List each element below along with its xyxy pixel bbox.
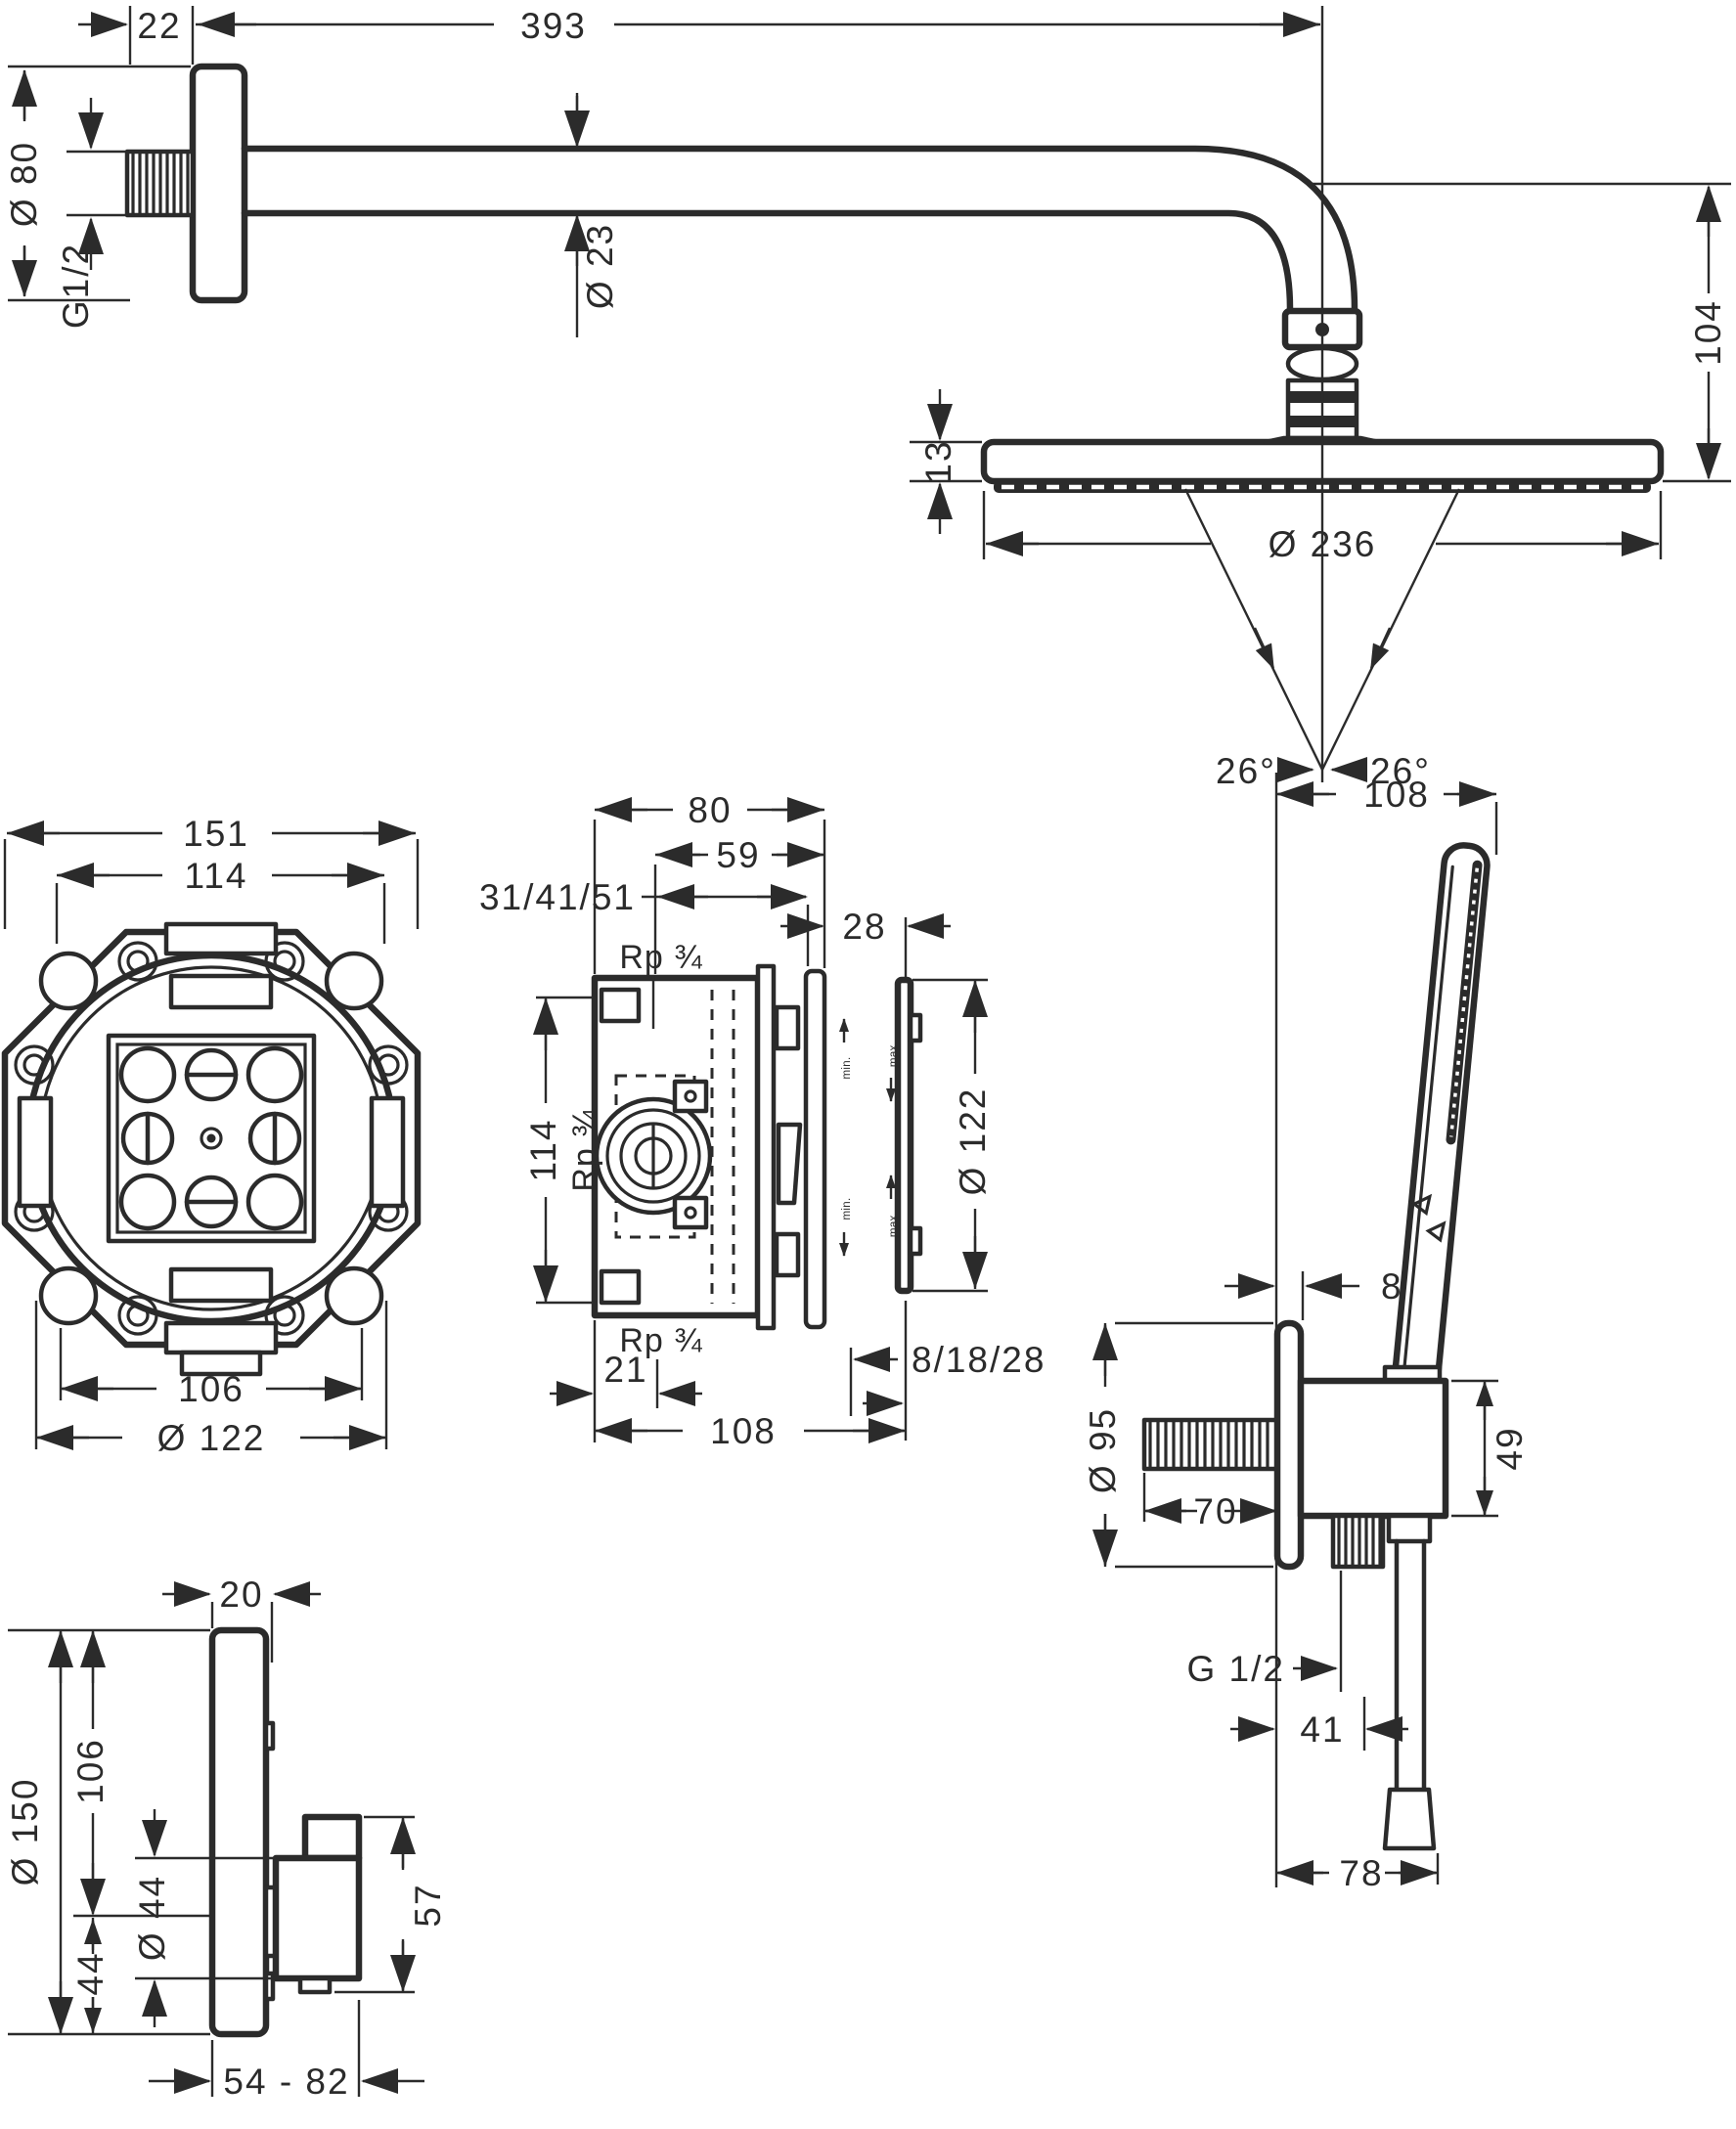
- arm-wall-flange: [193, 67, 245, 300]
- label-max-upper: max.: [888, 1042, 900, 1067]
- dim-150: Ø 150: [5, 1778, 45, 1886]
- handle-top-step: [305, 1817, 359, 1858]
- thread-hatch-lines: [133, 152, 188, 215]
- dim-8-18-28: 8/18/28: [912, 1340, 1046, 1380]
- dim-122-section: Ø 122: [953, 1087, 993, 1196]
- dim-70: 70: [1193, 1491, 1237, 1531]
- dim-78: 78: [1339, 1853, 1383, 1893]
- boss-tab: [675, 1198, 706, 1227]
- label-g12-hand: G 1/2: [1187, 1649, 1286, 1689]
- dim-393: 393: [520, 6, 587, 46]
- clamp-tab-left: [20, 1098, 51, 1206]
- dim-108-section: 108: [710, 1411, 777, 1451]
- boss-tab: [675, 1082, 706, 1111]
- dim-106-thermostat: 106: [70, 1738, 111, 1804]
- dim-41: 41: [1300, 1709, 1344, 1750]
- angle-arrow: [1255, 628, 1273, 668]
- ibox-section-view: min. max. min. max. 80 59 31/41/51 28 Rp…: [479, 790, 1046, 1451]
- plate-center-dot: [207, 1134, 216, 1143]
- dim-20: 20: [219, 1575, 263, 1615]
- dimension-drawing-sheet: 22 393 Ø 80 G1/2 Ø 23 104 13 Ø 236: [0, 0, 1736, 2129]
- angle-26-left: 26°: [1216, 751, 1276, 791]
- dim-122-front: Ø 122: [157, 1418, 266, 1458]
- mounting-plate: [758, 966, 774, 1328]
- clip: [777, 1234, 798, 1275]
- dim-80: 80: [688, 790, 732, 830]
- hand-shower-wand: [1392, 844, 1490, 1416]
- label-min-upper: min.: [841, 1057, 853, 1080]
- hand-shower-view: 108 8 Ø 95 70 49 G 1/2 41 78: [1083, 773, 1530, 1893]
- overhead-shower-view: 22 393 Ø 80 G1/2 Ø 23 104 13 Ø 236: [4, 6, 1731, 791]
- thermostat-view: 20 Ø 150 106 44 Ø 44 57 54 - 82: [5, 1575, 448, 2102]
- thread-hatch-lines: [1339, 1518, 1380, 1565]
- dim-28: 28: [842, 907, 886, 947]
- dim-54-82: 54 - 82: [223, 2062, 349, 2102]
- hose-nut: [1389, 1516, 1430, 1541]
- label-min-lower: min.: [841, 1198, 853, 1220]
- dim-44-diameter: Ø 44: [132, 1875, 172, 1961]
- dim-59: 59: [716, 835, 760, 875]
- dim-flange-diameter: Ø 80: [4, 141, 44, 227]
- clamp-tab-top-outer: [166, 924, 276, 954]
- dim-8: 8: [1381, 1266, 1403, 1307]
- clamp-tab-top-inner: [171, 976, 271, 1007]
- clamp-tab-bottom-inner: [171, 1269, 271, 1301]
- dim-114-section: 114: [523, 1119, 563, 1182]
- dim-31-41-51: 31/41/51: [479, 877, 636, 917]
- dim-108-hand: 108: [1363, 775, 1430, 815]
- label-rp34-mid: Rp ¾: [566, 1108, 603, 1191]
- body-corner-block: [601, 1271, 639, 1303]
- dim-thread: G1/2: [56, 243, 96, 329]
- dim-44: 44: [70, 1951, 111, 1995]
- body-corner-block: [601, 990, 639, 1021]
- dim-21: 21: [603, 1350, 647, 1390]
- dim-arm-diameter: Ø 23: [580, 223, 620, 309]
- angle-arrow: [1371, 628, 1390, 668]
- dim-49: 49: [1490, 1426, 1530, 1470]
- dim-13: 13: [918, 439, 958, 483]
- outlet-wall-plate: [1277, 1323, 1301, 1567]
- dim-22: 22: [137, 6, 181, 46]
- ibox-front-view: 151 114 106 Ø 122: [5, 814, 418, 1458]
- dim-104: 104: [1688, 299, 1728, 366]
- plate-back-tab: [266, 1723, 273, 1749]
- dim-151: 151: [183, 814, 249, 854]
- shower-arm: [245, 149, 1355, 309]
- hose: [1397, 1541, 1424, 1790]
- thermostat-plate: [212, 1630, 266, 2034]
- drawing-canvas: 22 393 Ø 80 G1/2 Ø 23 104 13 Ø 236: [0, 0, 1736, 2129]
- dim-57: 57: [408, 1883, 448, 1927]
- dim-106: 106: [178, 1369, 245, 1409]
- trim-plate-tab: [911, 1015, 920, 1041]
- dim-95: Ø 95: [1083, 1407, 1123, 1493]
- clamp-tab-right: [372, 1098, 403, 1206]
- dim-114: 114: [185, 856, 248, 896]
- label-max-lower: max.: [888, 1212, 900, 1237]
- clamp-tab-bottom-outer: [166, 1323, 276, 1353]
- outlet-body: [1301, 1381, 1446, 1516]
- clip: [777, 1007, 798, 1048]
- handle-bottom-tab: [300, 1978, 330, 1992]
- hose-cone: [1385, 1790, 1434, 1848]
- trim-plate-tab: [911, 1228, 920, 1254]
- handle-body: [276, 1858, 359, 1978]
- clip-bracket: [779, 1125, 800, 1203]
- protection-housing: [806, 971, 824, 1327]
- label-rp34-top: Rp ¾: [619, 939, 702, 976]
- dim-236: Ø 236: [1269, 524, 1377, 564]
